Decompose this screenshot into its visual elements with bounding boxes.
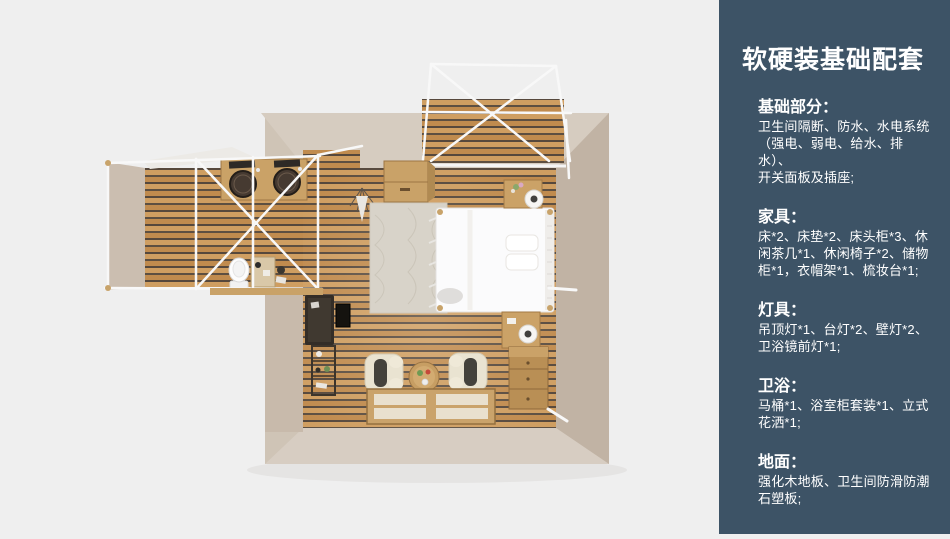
faucet-left	[256, 168, 260, 172]
pillow	[506, 254, 538, 270]
chair-back-cushion	[464, 358, 477, 386]
threshold-board	[210, 288, 323, 295]
cabinet-handle	[400, 188, 410, 191]
table-cup	[422, 379, 428, 385]
toilet	[229, 258, 249, 289]
drawer-knob	[526, 397, 529, 400]
window-pane	[374, 408, 426, 419]
panel-title: 软硬装基础配套	[742, 40, 936, 76]
floorplan-render	[0, 0, 719, 534]
chair-back-cushion	[374, 359, 387, 387]
throw-blanket	[437, 288, 463, 304]
tv	[336, 304, 350, 327]
storage-cabinet	[384, 161, 435, 202]
chair-arm	[449, 377, 463, 389]
section-lighting: 灯具： 吊顶灯*1、台灯*2、壁灯*2、 卫浴镜前灯*1;	[758, 301, 936, 355]
drawer-knob	[526, 377, 529, 380]
paper	[311, 301, 320, 308]
section-heading: 灯具：	[758, 301, 936, 321]
mirror-right	[274, 159, 300, 167]
cabinet-side	[428, 161, 435, 202]
bed-headboard	[545, 210, 554, 310]
drawer-knob	[526, 361, 529, 364]
porch-deck	[422, 99, 564, 163]
table-fruit	[426, 370, 431, 375]
dresser	[509, 347, 548, 409]
section-line: 马桶*1、浴室柜套装*1、立式	[758, 397, 936, 414]
flower-leaves	[513, 184, 519, 190]
nightstand-top	[504, 180, 543, 208]
bed-post	[547, 209, 553, 215]
section-line: 开关面板及插座;	[758, 169, 936, 186]
flower-bloom	[519, 183, 524, 188]
section-line: 强化木地板、卫生间防滑防潮	[758, 473, 936, 490]
shelf-item	[316, 351, 322, 357]
bathroom-left-wall	[107, 162, 145, 290]
section-line: （强电、弱电、给水、排水）、	[758, 135, 936, 169]
mirror-left	[229, 160, 255, 168]
section-line: 柜*1，衣帽架*1、梳妆台*1;	[758, 262, 936, 279]
bed-post	[437, 209, 443, 215]
shelf-plant	[324, 366, 330, 372]
section-line: 吊顶灯*1、台灯*2、壁灯*2、	[758, 321, 936, 338]
section-heading: 基础部分：	[758, 98, 936, 118]
section-line: 花洒*1;	[758, 414, 936, 431]
faucet-right	[298, 167, 302, 171]
section-heading: 家具：	[758, 208, 936, 228]
section-heading: 卫浴：	[758, 377, 936, 397]
nightstand-bottom	[502, 312, 540, 348]
pillow	[506, 235, 538, 251]
wall-bottom-face	[265, 428, 609, 464]
chair-arm	[449, 355, 463, 367]
bed-post	[547, 305, 553, 311]
armchair-left	[365, 354, 403, 392]
section-line: 床*2、床垫*2、床头柜*3、休	[758, 228, 936, 245]
lamp-center	[525, 331, 532, 338]
porch-threshold	[425, 165, 566, 166]
window-pane	[436, 394, 488, 405]
toilet-seat	[233, 261, 245, 277]
rug	[370, 203, 447, 313]
table-plant	[417, 370, 423, 376]
shelf-pot	[316, 368, 321, 373]
window-pane	[374, 394, 426, 405]
chair-arm	[389, 356, 403, 368]
window-pane	[436, 408, 488, 419]
lamp-center	[531, 196, 538, 203]
section-furniture: 家具： 床*2、床垫*2、床头柜*3、休 闲茶几*1、休闲椅子*2、储物 柜*1…	[758, 208, 936, 279]
cup	[263, 270, 270, 276]
kettle	[255, 262, 261, 268]
section-line: 卫浴镜前灯*1;	[758, 338, 936, 355]
floor-window	[367, 389, 495, 424]
section-flooring: 地面： 强化木地板、卫生间防滑防潮 石塑板;	[758, 453, 936, 507]
bed-post	[437, 305, 443, 311]
remote	[507, 318, 516, 324]
frame-knob	[105, 285, 111, 291]
wall-rail	[549, 288, 576, 290]
bottle	[277, 266, 285, 274]
section-bathroom: 卫浴： 马桶*1、浴室柜套装*1、立式 花洒*1;	[758, 377, 936, 431]
section-line: 卫生间隔断、防水、水电系统	[758, 118, 936, 135]
floorplan-svg	[0, 0, 719, 534]
flower-vase	[511, 189, 515, 193]
chair-arm	[389, 378, 403, 390]
info-panel: 软硬装基础配套 基础部分： 卫生间隔断、防水、水电系统 （强电、弱电、给水、排水…	[719, 0, 950, 534]
section-basics: 基础部分： 卫生间隔断、防水、水电系统 （强电、弱电、给水、排水）、 开关面板及…	[758, 98, 936, 186]
bed	[429, 208, 554, 312]
dresser-top	[509, 347, 548, 357]
coffee-table	[409, 362, 439, 392]
section-line: 闲茶几*1、休闲椅子*2、储物	[758, 245, 936, 262]
section-line: 石塑板;	[758, 490, 936, 507]
wall-left-face	[265, 287, 303, 432]
frame-knob	[105, 160, 111, 166]
armchair-right	[449, 353, 487, 391]
section-heading: 地面：	[758, 453, 936, 473]
